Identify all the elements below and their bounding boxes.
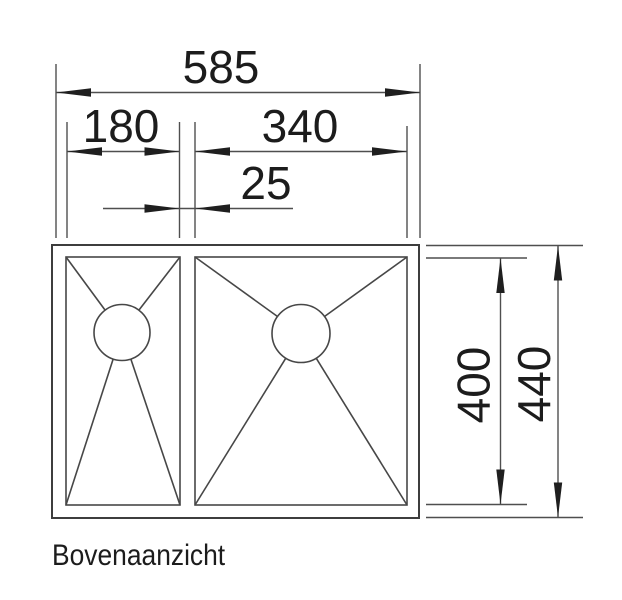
dim-label-right-bowl-width: 340 xyxy=(262,100,339,152)
sink-top-view-drawing: 585 180 340 25 400 440 Bovenaanzicht xyxy=(0,0,622,600)
right-bowl-rect xyxy=(195,257,407,505)
right-bowl-diagonal xyxy=(316,358,407,505)
arrowhead xyxy=(385,88,420,96)
dim-label-total-width: 585 xyxy=(183,41,260,93)
arrowhead xyxy=(496,470,504,505)
dimension-arrowheads xyxy=(56,88,562,517)
left-bowl-diagonal xyxy=(131,360,180,506)
arrowhead xyxy=(195,147,230,155)
right-bowl xyxy=(195,257,407,505)
arrowhead xyxy=(554,246,562,281)
dim-label-inner-depth: 400 xyxy=(448,347,500,424)
left-bowl xyxy=(66,257,180,505)
dim-label-total-depth: 440 xyxy=(508,346,560,423)
left-bowl-rect xyxy=(66,257,180,505)
arrowhead xyxy=(56,88,91,96)
arrowhead xyxy=(195,204,230,212)
dim-label-left-bowl-width: 180 xyxy=(83,100,160,152)
right-bowl-diagonal xyxy=(195,257,278,317)
arrowhead xyxy=(145,204,180,212)
right-bowl-drain-circle xyxy=(272,305,330,363)
right-bowl-diagonal xyxy=(325,257,408,317)
left-bowl-diagonal xyxy=(66,360,113,506)
arrowhead xyxy=(554,483,562,518)
view-caption: Bovenaanzicht xyxy=(52,537,225,571)
left-bowl-diagonal xyxy=(139,257,180,310)
arrowhead xyxy=(372,147,407,155)
right-bowl-diagonal xyxy=(195,358,286,505)
left-bowl-drain-circle xyxy=(94,305,150,361)
drawing-svg: 585 180 340 25 400 440 Bovenaanzicht xyxy=(0,0,622,600)
left-bowl-diagonal xyxy=(66,257,105,310)
dim-label-gap: 25 xyxy=(240,157,291,209)
arrowhead xyxy=(496,258,504,293)
